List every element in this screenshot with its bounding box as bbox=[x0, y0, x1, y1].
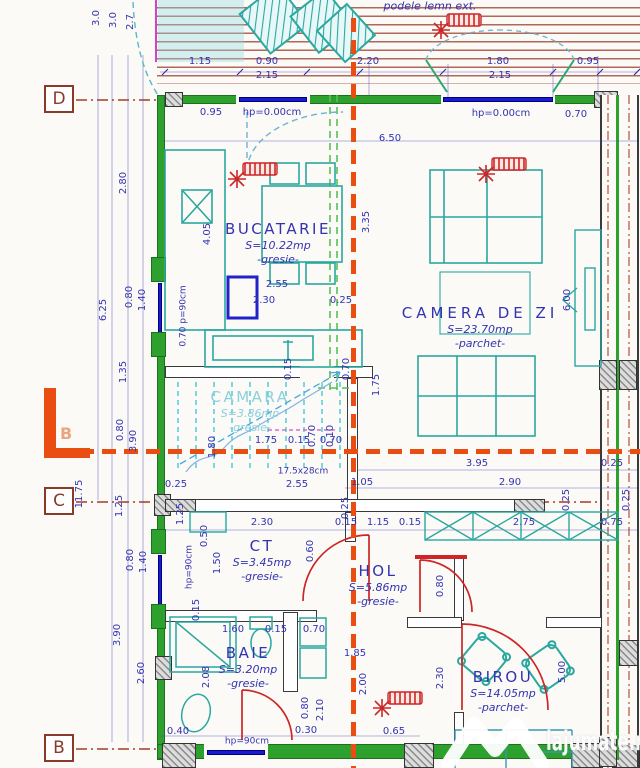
dimension-label: 1.15 bbox=[367, 518, 389, 528]
room-name: BIROU bbox=[470, 668, 535, 687]
dimension-label: 3.90 bbox=[129, 430, 139, 452]
dimension-label: 0.25 bbox=[165, 480, 187, 490]
dimension-label: 5.00 bbox=[558, 661, 568, 683]
dimension-label: 1.15 bbox=[189, 57, 211, 67]
dimension-label: 0.70 bbox=[303, 625, 325, 635]
door-baie bbox=[242, 690, 292, 740]
room-area: S=5.86mp bbox=[349, 581, 407, 595]
room-finish: -parchet- bbox=[402, 337, 559, 351]
dimension-label: hp=0.00cm bbox=[472, 109, 531, 119]
dimension-label: 11.75 bbox=[75, 480, 85, 509]
dimension-label: 4.05 bbox=[203, 223, 213, 245]
room-label-birou: BIROUS=14.05mp-parchet- bbox=[470, 668, 535, 715]
dimension-label: 0.70 bbox=[565, 110, 587, 120]
dimension-label: 0.70 bbox=[342, 358, 352, 380]
dimension-label: 0.25 bbox=[341, 497, 351, 519]
dimension-label: 2.7 bbox=[126, 14, 136, 30]
dimension-label: 0.15 bbox=[284, 358, 294, 380]
dimension-label: 2.30 bbox=[251, 518, 273, 528]
dimension-label: 2.55 bbox=[286, 480, 308, 490]
room-name: BAIE bbox=[219, 644, 277, 663]
dimension-label: 1.85 bbox=[344, 649, 366, 659]
dimension-label: 0.80 bbox=[301, 697, 311, 719]
dimension-label: 1.75 bbox=[255, 436, 277, 446]
dimension-label: 0.90 bbox=[256, 57, 278, 67]
room-area: S=14.05mp bbox=[470, 687, 535, 701]
dimension-label: 2.08 bbox=[202, 666, 212, 688]
dimension-label: 0.95 bbox=[577, 57, 599, 67]
dimension-label: 2.30 bbox=[253, 296, 275, 306]
drawing-layer bbox=[0, 0, 640, 768]
room-finish: -gresie- bbox=[210, 421, 289, 435]
dimension-label: 1.40 bbox=[138, 289, 148, 311]
room-name: CT bbox=[233, 537, 291, 556]
living-sofa bbox=[418, 170, 542, 436]
dimension-label: hp=90cm bbox=[186, 545, 195, 589]
room-name: CAMERA DE ZI bbox=[402, 304, 559, 323]
dimension-label: 2.75 bbox=[513, 518, 535, 528]
room-label-camera-de-zi: CAMERA DE ZIS=23.70mp-parchet- bbox=[402, 304, 559, 351]
room-area: S=3.20mp bbox=[219, 663, 277, 677]
room-finish: -gresie- bbox=[219, 677, 277, 691]
dimension-label: 0.15 bbox=[192, 599, 202, 621]
dimension-label: podele lemn ext. bbox=[384, 1, 477, 12]
dimension-label: 3.0 bbox=[92, 10, 102, 26]
dimension-label: 3.95 bbox=[466, 459, 488, 469]
dimension-label: 1.35 bbox=[119, 361, 129, 383]
dimension-label: 0.50 bbox=[200, 525, 210, 547]
dimension-label: 0.80 bbox=[126, 549, 136, 571]
elevation-marker bbox=[228, 14, 526, 717]
dimension-label: 1.05 bbox=[351, 478, 373, 488]
dimension-label: hp=0.00cm bbox=[243, 108, 302, 118]
dimension-label: 2.55 bbox=[266, 280, 288, 290]
room-label-bucatarie: BUCATARIES=10.22mp-gresie- bbox=[225, 220, 331, 267]
dimension-label: 0.80 bbox=[116, 419, 126, 441]
dimension-label: 1.60 bbox=[222, 625, 244, 635]
dimension-label: 0.80 bbox=[436, 575, 446, 597]
dimension-label: 1.80 bbox=[487, 57, 509, 67]
section-line-horizontal bbox=[58, 449, 640, 454]
extension-lines bbox=[98, 55, 638, 742]
dimension-label: 2.30 bbox=[436, 667, 446, 689]
dimension-label: 1.75 bbox=[372, 374, 382, 396]
dimension-label: 3.0 bbox=[109, 12, 119, 28]
dimension-label: 6.00 bbox=[563, 289, 573, 311]
dimension-label: 2.15 bbox=[489, 71, 511, 81]
dimension-label: 1.25 bbox=[115, 495, 125, 517]
room-area: S=3.45mp bbox=[233, 556, 291, 570]
dimension-label: 2.20 bbox=[357, 57, 379, 67]
room-area: S=23.70mp bbox=[402, 323, 559, 337]
dimension-label: 0.70 bbox=[320, 436, 342, 446]
room-label-ct: CTS=3.45mp-gresie- bbox=[233, 537, 291, 584]
grid-marker-c: C bbox=[44, 487, 74, 515]
dimension-label: 0.25 bbox=[562, 489, 572, 511]
grid-marker-d: D bbox=[44, 85, 74, 113]
dimension-label: 0.40 bbox=[167, 727, 189, 737]
room-area: S=10.22mp bbox=[225, 239, 331, 253]
dimension-label: 0.15 bbox=[265, 625, 287, 635]
dimension-label: 0.25 bbox=[622, 489, 632, 511]
grid-marker-b: B bbox=[44, 734, 74, 762]
room-name: CAMARA bbox=[210, 388, 289, 407]
dimension-label: 2.00 bbox=[359, 673, 369, 695]
dimension-label: 1.40 bbox=[139, 551, 149, 573]
section-marker-b bbox=[44, 388, 56, 454]
watermark-text: lajumate.ro bbox=[546, 726, 640, 757]
dimension-label: 0.95 bbox=[200, 108, 222, 118]
dimension-label: 0.25 bbox=[601, 459, 623, 469]
room-label-camara: CAMARAS=3.86mp-gresie- bbox=[210, 388, 289, 435]
dimension-label: 0.15 bbox=[335, 518, 357, 528]
dimension-label: 1.50 bbox=[213, 552, 223, 574]
dimension-label: 3.90 bbox=[113, 624, 123, 646]
dimension-label: 1.25 bbox=[176, 503, 186, 525]
section-label: B bbox=[60, 424, 72, 443]
dimension-label: 6.50 bbox=[379, 134, 401, 144]
dimension-label: 0.30 bbox=[295, 726, 317, 736]
room-label-baie: BAIES=3.20mp-gresie- bbox=[219, 644, 277, 691]
dimension-label: 2.15 bbox=[256, 71, 278, 81]
dimension-label: 2.90 bbox=[499, 478, 521, 488]
room-finish: -gresie- bbox=[233, 570, 291, 584]
dimension-label: 0.25 bbox=[330, 296, 352, 306]
dimension-label: hp=90cm bbox=[225, 738, 269, 747]
section-marker-b bbox=[44, 448, 90, 458]
dimension-label: 17.5x28cm bbox=[278, 468, 329, 477]
dimension-label: 2.60 bbox=[137, 662, 147, 684]
dimension-label: 0.80 bbox=[125, 286, 135, 308]
dimension-label: 2.10 bbox=[316, 699, 326, 721]
room-name: HOL bbox=[349, 562, 407, 581]
dimension-label: 1.80 bbox=[208, 436, 218, 458]
room-area: S=3.86mp bbox=[210, 407, 289, 421]
dimension-label: 0.15 bbox=[399, 518, 421, 528]
dimension-label: 0.15 bbox=[288, 436, 310, 446]
watermark: lajumate.ro bbox=[428, 712, 640, 768]
swing-curve bbox=[133, 2, 158, 95]
dimension-label: 0.60 bbox=[306, 540, 316, 562]
dimension-label: 0.75 bbox=[601, 518, 623, 528]
room-finish: -gresie- bbox=[349, 595, 407, 609]
room-name: BUCATARIE bbox=[225, 220, 331, 239]
dimension-label: 6.25 bbox=[99, 299, 109, 321]
dimension-label: 3.35 bbox=[362, 211, 372, 233]
room-finish: -gresie- bbox=[225, 253, 331, 267]
floor-plan: B DCB BUCATARIES=10.22mp-gresie-CAMERA D… bbox=[0, 0, 640, 768]
room-label-hol: HOLS=5.86mp-gresie- bbox=[349, 562, 407, 609]
dimension-label: 0.70 p=90cm bbox=[180, 285, 189, 346]
dimension-label: 0.65 bbox=[383, 727, 405, 737]
dimension-label: 2.80 bbox=[119, 172, 129, 194]
